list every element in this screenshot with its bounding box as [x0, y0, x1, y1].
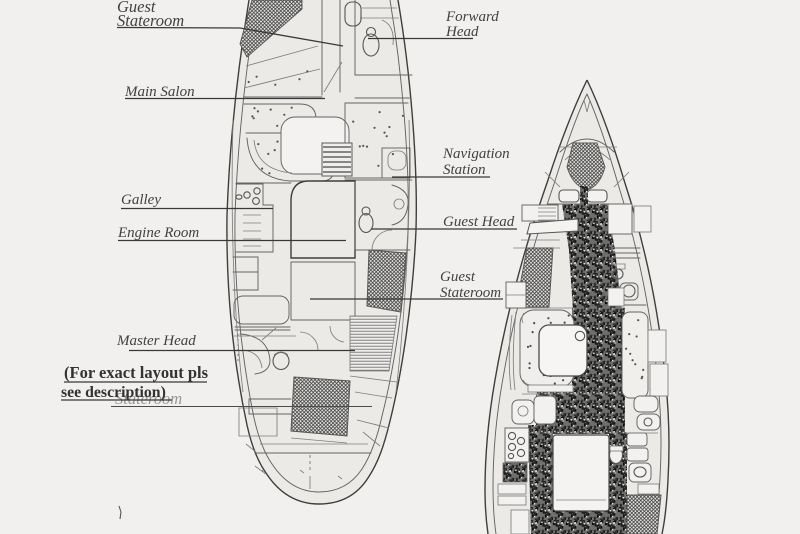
svg-text:(For exact layout pls: (For exact layout pls: [64, 363, 209, 382]
svg-text:Navigation: Navigation: [442, 146, 510, 162]
svg-text:Guest: Guest: [440, 269, 476, 285]
svg-text:Galley: Galley: [121, 192, 161, 208]
svg-text:Master Head: Master Head: [116, 333, 196, 349]
svg-text:Head: Head: [445, 24, 479, 40]
svg-text:see description): see description): [61, 384, 166, 401]
svg-text:Guest Head: Guest Head: [443, 214, 515, 230]
svg-text:Forward: Forward: [445, 9, 499, 25]
svg-text:Main Salon: Main Salon: [124, 84, 195, 100]
svg-text:Engine Room: Engine Room: [117, 225, 199, 241]
svg-text:Station: Station: [443, 162, 486, 178]
